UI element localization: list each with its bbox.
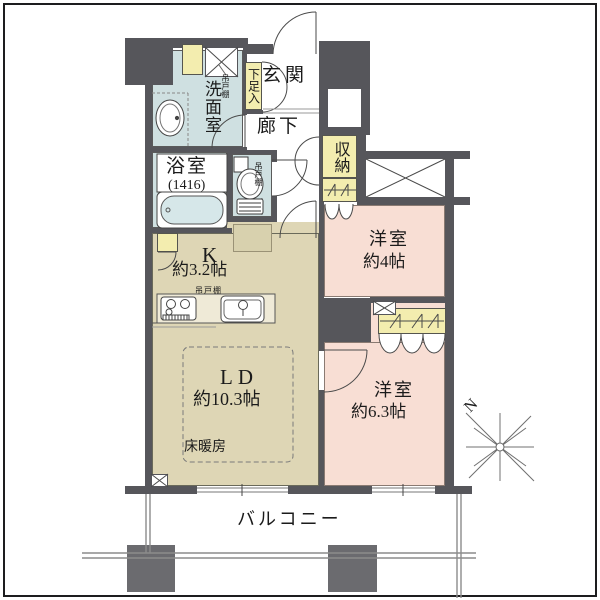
bathroom-label: 浴室 [166,157,208,177]
wall-center-mid [319,342,324,351]
living-label: LD [220,366,258,388]
washroom-cupboard-label: 吊戸棚 [221,74,229,98]
bedroom4-size-label: 約4帖 [363,253,406,271]
bathroom-size-label: (1416) [168,179,205,194]
wall-bottom-a [125,486,197,494]
wall-toilet-bottom [227,217,277,222]
bedroom-4-area [324,205,445,297]
wall-toilet-right-upper [272,150,277,162]
duct-box-small [373,301,396,315]
wall-bottom-c [435,486,472,494]
balcony-pillar-left [127,545,175,592]
wall-bathroom-right [227,152,232,220]
wall-toilet-top [227,150,277,154]
kitchen-size-label: 約3.2帖 [172,261,227,279]
kitchen-cabinet-box [157,233,178,252]
entrance-label: 玄関 [262,66,308,86]
washroom-cupboard-box [205,47,238,77]
wall-bottom-b [288,486,372,494]
bedroom63-size-label: 約6.3帖 [351,403,406,421]
wall-top-b [243,44,273,54]
wall-meter-bottom [319,128,370,135]
meter-box [327,88,362,128]
water-heater-box [182,44,203,75]
floor-plan: 収納 下足入 [0,0,600,600]
pillar-top-left [125,38,173,85]
wall-center-upper [319,202,324,298]
balcony-pillar-right [328,545,377,592]
bedroom63-label: 洋室 [374,381,414,400]
shutter-box [151,474,168,487]
storage-closet: 収納 [322,135,357,178]
wall-right [445,205,454,486]
wall-bedroom4-top [357,197,470,205]
pipe-duct-box [366,159,445,197]
hallway-label: 廊下 [257,117,301,137]
kitchen-cupboard-label: 吊戸棚 [195,287,222,295]
toilet-area [232,154,272,217]
washroom-label: 洗面室 [203,80,220,134]
wall-center-lower [319,390,324,486]
wall-duct-top [366,151,470,159]
pillar-entrance [319,41,370,88]
refrigerator-space [233,224,272,252]
wall-left [145,85,152,486]
wall-storage-right [357,135,366,205]
wall-under-shoebox [243,110,263,114]
shoe-cabinet: 下足入 [245,62,262,110]
balcony-label: バルコニー [237,510,342,529]
bedroom4-label: 洋室 [369,230,409,249]
shoe-cabinet-label: 下足入 [248,68,260,104]
pillar-center [319,298,371,342]
closet-hatched-small [322,178,357,202]
floor-heating-label: 床暖房 [184,441,226,456]
living-size-label: 約10.3帖 [193,390,261,409]
storage-label: 収納 [332,141,348,173]
toilet-cupboard-label: 吊戸棚 [254,162,262,186]
